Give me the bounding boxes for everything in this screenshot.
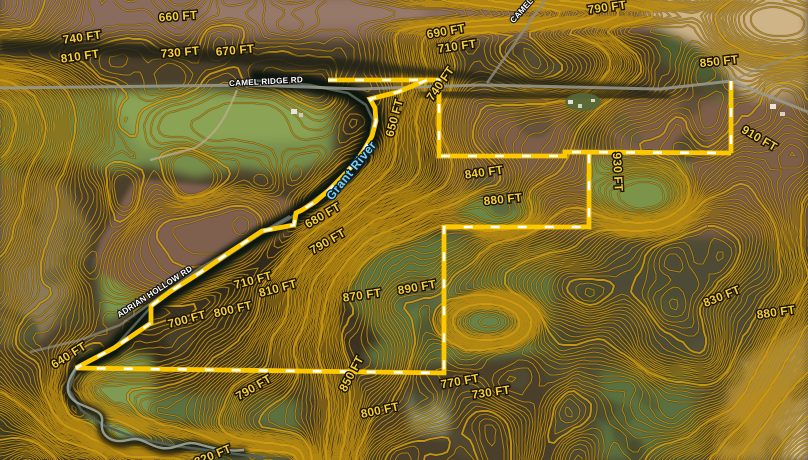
- svg-text:930 FT: 930 FT: [610, 152, 626, 192]
- svg-text:660 FT: 660 FT: [158, 8, 198, 25]
